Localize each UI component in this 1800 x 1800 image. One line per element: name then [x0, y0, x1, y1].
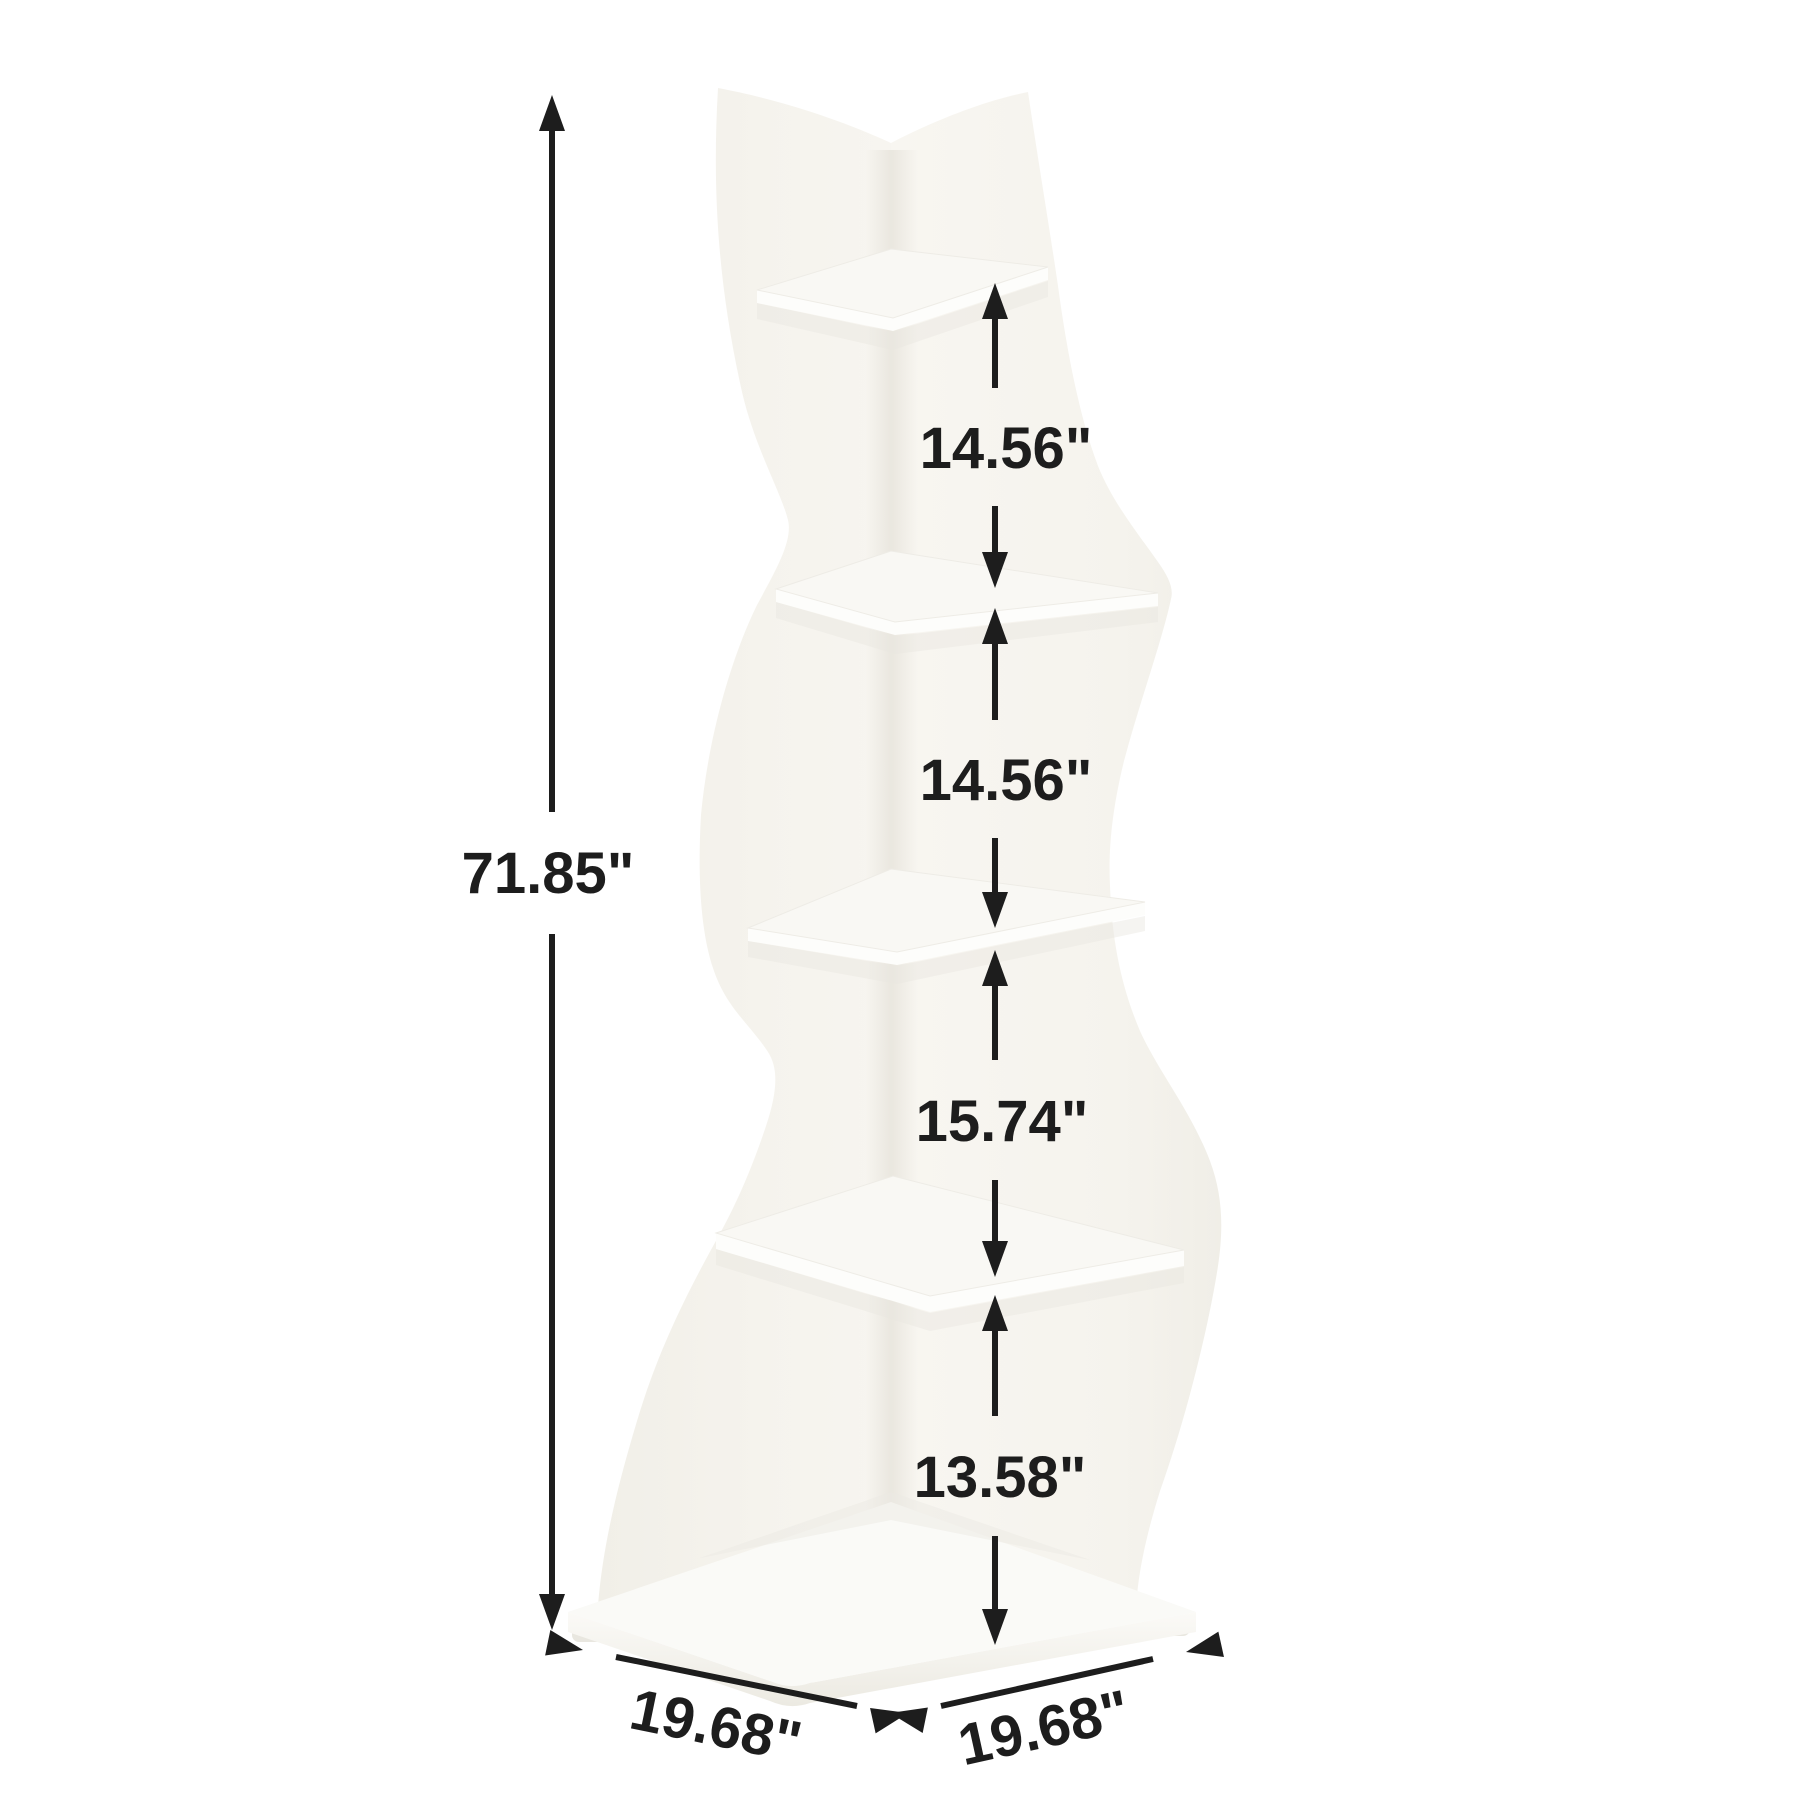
height-dimension: 71.85" — [462, 95, 635, 1630]
product-dimension-image: 71.85" 14.56" 14.56" 15.74" 13.58" — [0, 0, 1800, 1800]
height-arrow-down-icon — [539, 1594, 565, 1630]
corner-shelf-illustration — [568, 88, 1221, 1706]
tier4-label: 13.58" — [914, 1445, 1087, 1510]
base-right-dimension-label: 19.68" — [953, 1678, 1136, 1779]
tier3-label: 15.74" — [916, 1089, 1089, 1154]
height-dimension-label: 71.85" — [462, 841, 635, 906]
height-arrow-up-icon — [539, 95, 565, 131]
base-right-arrow-right-icon — [1183, 1632, 1224, 1665]
tier1-label: 14.56" — [920, 416, 1093, 481]
dimension-diagram-svg: 71.85" 14.56" 14.56" 15.74" 13.58" — [0, 0, 1800, 1800]
tier2-label: 14.56" — [920, 748, 1093, 813]
